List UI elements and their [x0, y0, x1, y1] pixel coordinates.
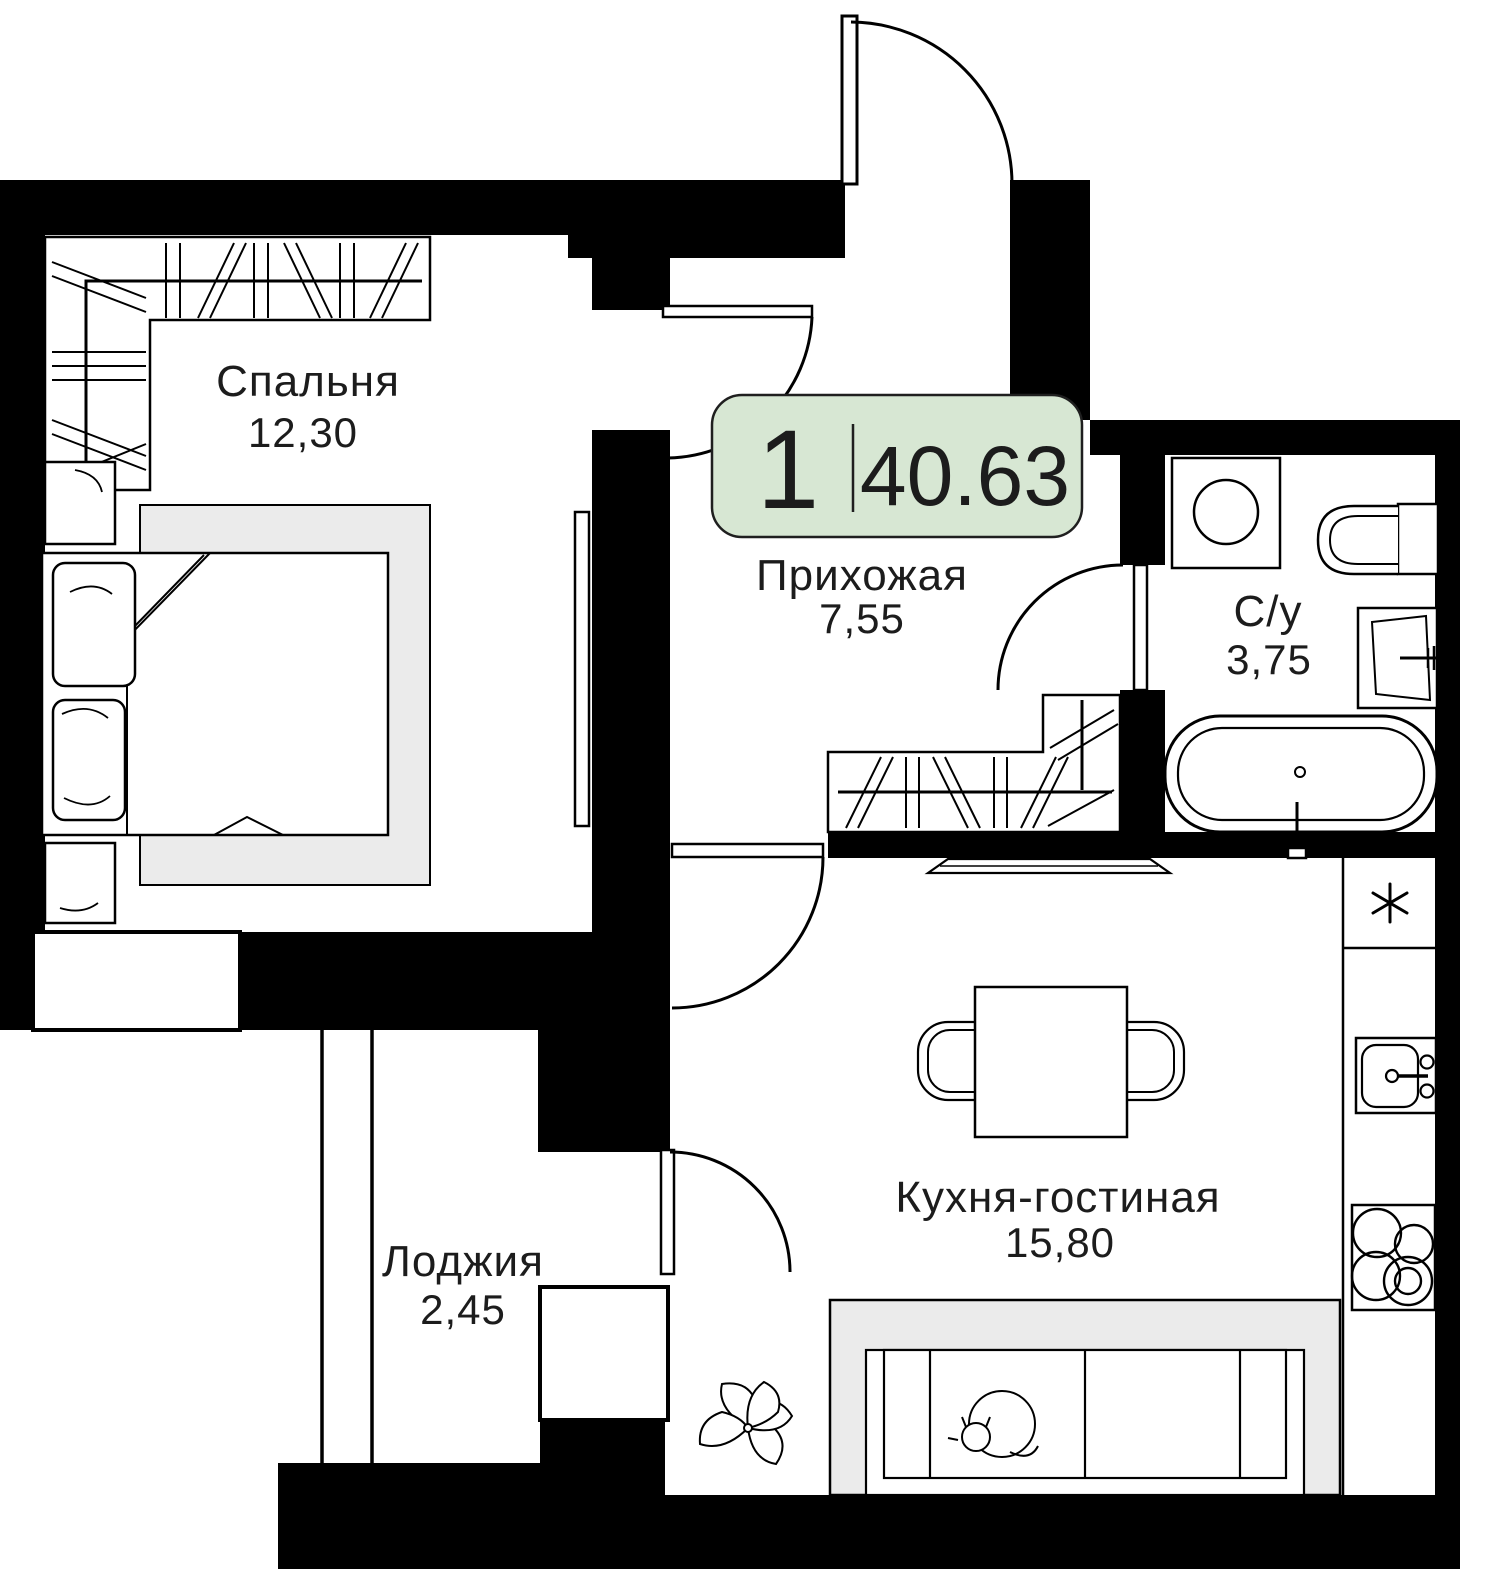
wall-kitchen-top [828, 832, 1437, 858]
bedroom-label: Спальня [216, 357, 400, 406]
wall-divider-stub [592, 255, 670, 310]
wall-right [1435, 420, 1460, 1505]
toilet-icon [1318, 504, 1438, 574]
kitchen-counter-edge [1343, 858, 1435, 1495]
fridge-icon [1373, 884, 1407, 922]
area-badge: 1 40.63 [712, 395, 1082, 537]
loggia-label: Лоджия [382, 1237, 544, 1286]
badge-room-count: 1 [757, 407, 819, 532]
sofa-icon [830, 1300, 1340, 1495]
entrance-door-arc [851, 22, 1012, 184]
entrance-door-leaf [842, 16, 857, 184]
wall-bedroom-divider [592, 430, 670, 940]
bedroom-area: 12,30 [248, 409, 358, 456]
wash-basin-icon [1358, 608, 1437, 708]
hallway-area: 7,55 [819, 595, 905, 642]
kitchen-area: 15,80 [1005, 1219, 1115, 1266]
bathtub-faucet [1288, 848, 1306, 858]
pillow-top [53, 563, 135, 686]
bathroom-door-arc [998, 565, 1123, 690]
loggia-glazing [322, 1030, 372, 1463]
bathroom-door [998, 565, 1147, 690]
mirror-icon [575, 512, 589, 826]
kitchen-door-leaf [672, 844, 823, 857]
wall-entry-right [1010, 180, 1090, 420]
hallway-label: Прихожая [756, 551, 968, 600]
dining-table [975, 987, 1127, 1137]
balcony-door [661, 1150, 790, 1274]
wall-top-thick [568, 233, 845, 258]
kitchen-label: Кухня-гостиная [895, 1173, 1220, 1222]
entrance-door [842, 16, 1012, 184]
plant-icon [700, 1382, 792, 1464]
toilet-tank [1398, 504, 1438, 574]
window-loggia-block [540, 1287, 668, 1420]
cooktop-icon [1352, 1205, 1435, 1310]
nightstand-top [45, 462, 115, 544]
wall-loggia-bottom [278, 1463, 540, 1569]
dining-set-icon [918, 987, 1184, 1137]
pillow-bottom [53, 700, 125, 820]
bed-icon [42, 505, 430, 885]
wall-left [0, 180, 45, 1030]
wall-top [0, 180, 845, 235]
floor-plan: 1 40.63 Спальня 12,30 Прихожая 7,55 С/у … [0, 0, 1500, 1569]
wall-loggia-step [540, 1420, 665, 1569]
floor-plan-canvas: 1 40.63 Спальня 12,30 Прихожая 7,55 С/у … [0, 0, 1500, 1569]
washing-machine-body [1172, 458, 1280, 568]
wall-bathroom-left-upper [1120, 455, 1165, 565]
tv-icon [928, 859, 1170, 873]
hallway-wardrobe-icon [828, 695, 1120, 832]
bathroom-area: 3,75 [1226, 636, 1312, 683]
cooktop-box [1352, 1205, 1435, 1310]
loggia-area: 2,45 [420, 1286, 506, 1333]
badge-total-area: 40.63 [860, 429, 1070, 523]
wall-kitchen-left [538, 1030, 670, 1152]
bathtub-outer [1165, 716, 1437, 832]
washing-machine-icon [1172, 458, 1280, 568]
bathroom-door-leaf [1134, 565, 1147, 690]
plant-center [744, 1424, 752, 1432]
wall-bathroom-left-lower [1120, 690, 1165, 832]
wall-bottom [665, 1495, 1460, 1569]
kitchen-door-arc [672, 857, 823, 1008]
bathroom-label: С/у [1234, 587, 1303, 636]
kitchen-door [672, 844, 823, 1008]
wall-bathroom-top [1090, 420, 1460, 455]
balcony-door-arc [670, 1152, 790, 1272]
bedroom-door-leaf [663, 306, 812, 317]
balcony-door-leaf [661, 1150, 674, 1274]
window-bedroom [33, 932, 240, 1030]
kitchen-sink-icon [1356, 1038, 1436, 1113]
cat-head [962, 1423, 990, 1451]
